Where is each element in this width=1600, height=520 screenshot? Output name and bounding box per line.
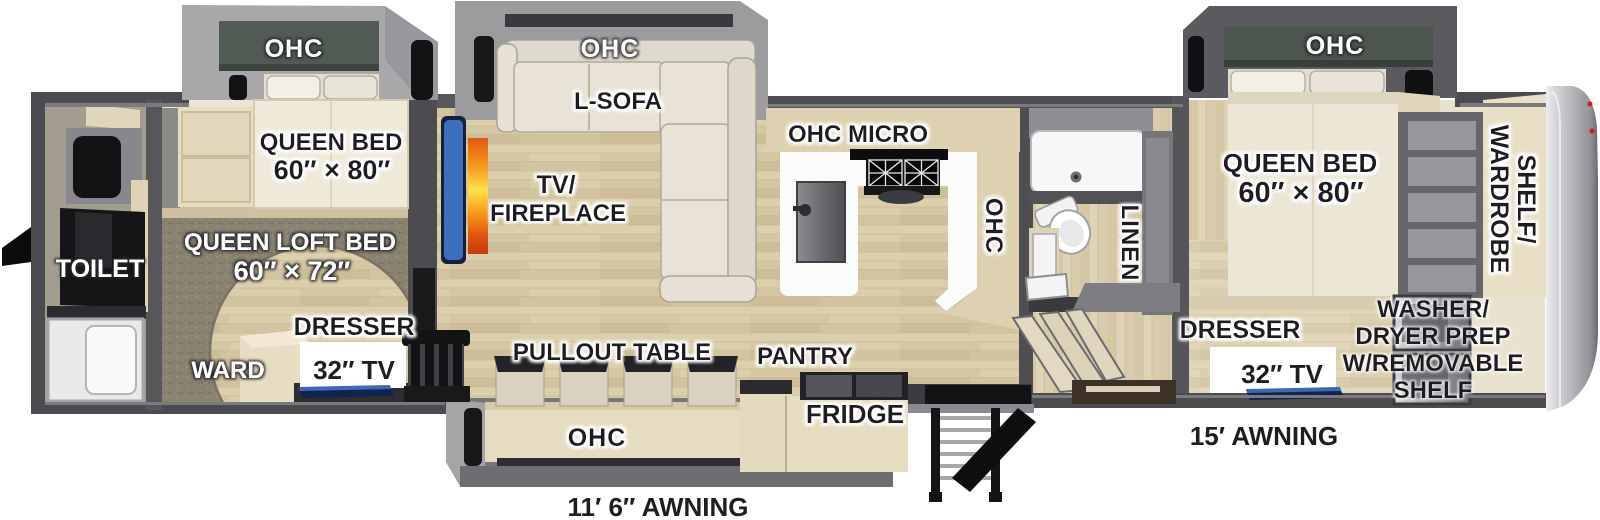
svg-text:PULLOUT TABLE: PULLOUT TABLE [513,339,711,366]
svg-text:LINEN: LINEN [1116,205,1143,282]
svg-text:QUEEN BED: QUEEN BED [1223,148,1378,178]
svg-text:32″ TV: 32″ TV [313,355,395,385]
svg-text:TOILET: TOILET [56,255,144,283]
svg-text:15′ AWNING: 15′ AWNING [1190,421,1338,451]
svg-text:L-SOFA: L-SOFA [574,88,662,115]
svg-text:QUEEN LOFT BED: QUEEN LOFT BED [184,229,396,256]
svg-text:WARDROBE: WARDROBE [1485,125,1513,274]
svg-text:OHC: OHC [980,198,1007,254]
svg-text:QUEEN BED: QUEEN BED [260,129,403,156]
svg-text:W/REMOVABLE: W/REMOVABLE [1343,350,1524,377]
svg-text:32″ TV: 32″ TV [1241,359,1323,389]
svg-text:60″ × 80″: 60″ × 80″ [274,155,391,185]
svg-text:SHELF: SHELF [1394,377,1473,404]
svg-text:FRIDGE: FRIDGE [806,399,904,429]
svg-text:DRYER PREP: DRYER PREP [1355,323,1510,350]
svg-text:SHELF/: SHELF/ [1512,155,1540,244]
svg-text:OHC: OHC [1306,32,1365,60]
svg-text:PANTRY: PANTRY [757,343,853,370]
svg-text:DRESSER: DRESSER [294,313,415,341]
svg-text:OHC MICRO: OHC MICRO [788,121,928,148]
svg-text:OHC: OHC [568,424,627,452]
svg-text:FIREPLACE: FIREPLACE [490,200,626,227]
svg-text:OHC: OHC [581,35,640,63]
svg-text:OHC: OHC [265,35,324,63]
svg-text:60″ × 80″: 60″ × 80″ [1238,177,1363,209]
svg-text:60″ × 72″: 60″ × 72″ [234,256,351,286]
svg-text:WARD: WARD [191,357,264,384]
svg-text:11′ 6″ AWNING: 11′ 6″ AWNING [568,492,749,520]
svg-text:WASHER/: WASHER/ [1377,296,1489,323]
svg-text:TV/: TV/ [537,171,576,199]
svg-text:DRESSER: DRESSER [1180,316,1301,344]
